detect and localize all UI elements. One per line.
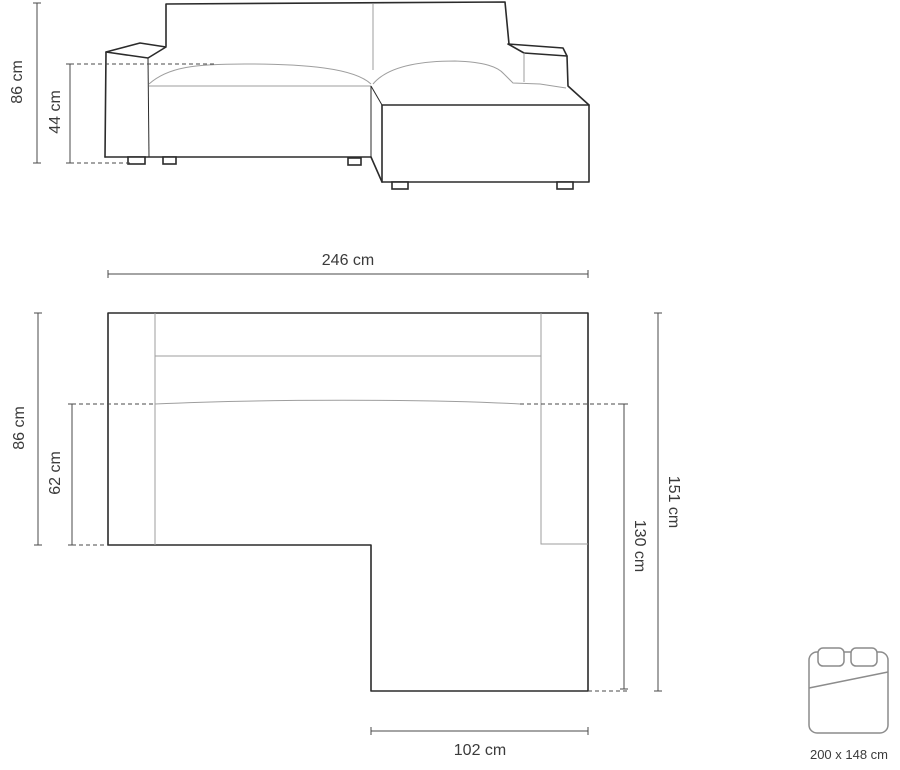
top-chaise-width-label: 102 cm: [420, 741, 540, 761]
top-depth-dimension-line: [34, 313, 42, 545]
bed-icon: [809, 648, 888, 733]
top-width-label: 246 cm: [288, 251, 408, 271]
top-chaise-length-dimension-line: [620, 404, 628, 689]
top-seat-depth-label: 62 cm: [46, 433, 66, 513]
top-total-side-label: 151 cm: [663, 462, 683, 542]
front-seat-height-label: 44 cm: [46, 72, 66, 152]
top-view-sofa-drawing: [34, 270, 662, 735]
front-height-dimension-line: [33, 3, 41, 163]
front-height-label: 86 cm: [8, 42, 28, 122]
sofa-dimension-diagram: 86 cm 44 cm 246 cm 86 cm 62 cm 151 cm 13…: [0, 0, 900, 770]
top-width-dimension-line: [108, 270, 588, 278]
front-view-sofa-drawing: [33, 2, 589, 189]
top-chaise-width-dimension-line: [371, 727, 588, 735]
bed-size-label: 200 x 148 cm: [789, 746, 900, 764]
front-seat-height-dimension-line: [66, 64, 74, 163]
top-depth-label: 86 cm: [10, 388, 30, 468]
top-total-side-dimension-line: [654, 313, 662, 691]
diagram-linework: [0, 0, 900, 770]
top-chaise-length-label: 130 cm: [629, 506, 649, 586]
top-seat-depth-dimension-line: [68, 404, 76, 545]
